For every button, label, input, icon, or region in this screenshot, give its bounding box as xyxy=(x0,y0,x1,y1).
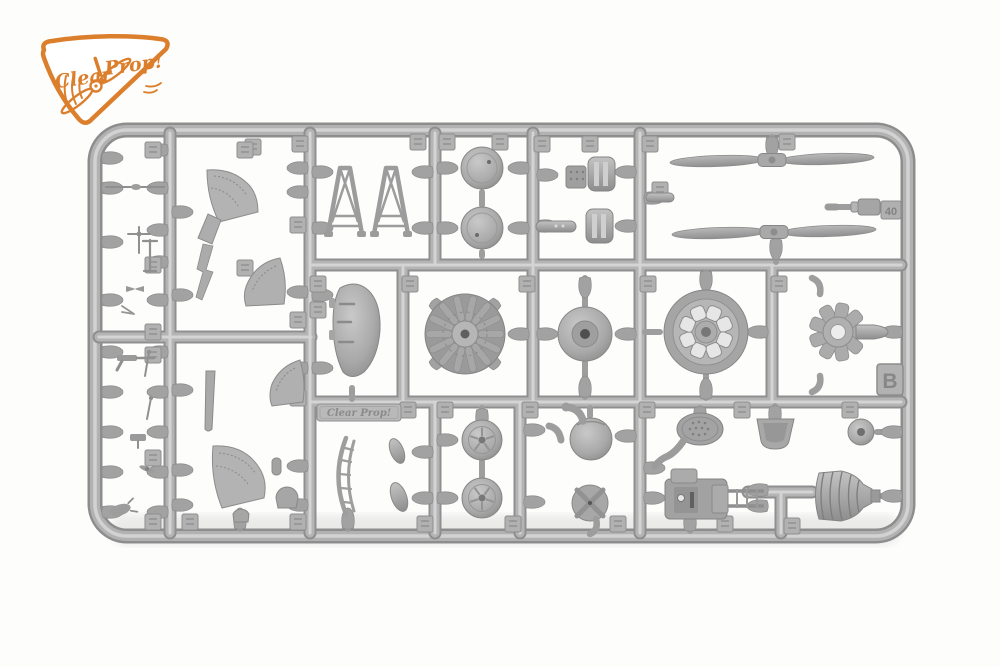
elbow-pipe-1 xyxy=(549,426,561,440)
part-number-tag-40: 40 xyxy=(881,201,901,219)
hub-disc xyxy=(558,307,612,361)
bucket-seat xyxy=(757,419,794,449)
ribbed-box-1 xyxy=(566,157,615,191)
wheel-disc-bottom-2 xyxy=(462,478,502,518)
part-number-40-label: 40 xyxy=(885,206,897,218)
curved-truss xyxy=(339,438,355,514)
honeycomb-radiator xyxy=(655,413,723,466)
ball-tank xyxy=(562,403,613,461)
wheel-disc-top-2 xyxy=(461,207,503,249)
paddle-blade-1 xyxy=(386,437,408,466)
propeller-1 xyxy=(670,152,874,168)
part-40-pump xyxy=(828,199,880,215)
fan-drive-shaft xyxy=(856,325,888,339)
wheel-disc-bottom-1 xyxy=(462,420,502,460)
tail-wheel xyxy=(848,419,874,445)
embossed-brand-text: Clear Prop! xyxy=(327,408,391,419)
ribbed-spinner-cone xyxy=(816,471,881,521)
cowling-panel xyxy=(329,284,380,377)
sprue-letter-tag: B xyxy=(877,364,903,395)
ribbed-box-2 xyxy=(536,209,613,243)
radial-engine xyxy=(425,294,505,374)
fuselage-deck-segments xyxy=(196,170,304,522)
sprue-letter-label: B xyxy=(882,370,897,393)
small-cylinder-part xyxy=(646,193,674,202)
sprue-photo: Clear Prop! xyxy=(0,0,1000,667)
propeller-2 xyxy=(672,224,876,240)
wheel-disc-top-1 xyxy=(461,147,503,189)
brand-logo: Clear Prop! xyxy=(43,36,168,123)
spoked-main-wheel xyxy=(664,290,748,374)
paddle-blade-2 xyxy=(387,480,411,513)
embossed-brand-plate: Clear Prop! xyxy=(317,404,401,421)
photo-canvas: Clear Prop! xyxy=(0,0,1000,667)
